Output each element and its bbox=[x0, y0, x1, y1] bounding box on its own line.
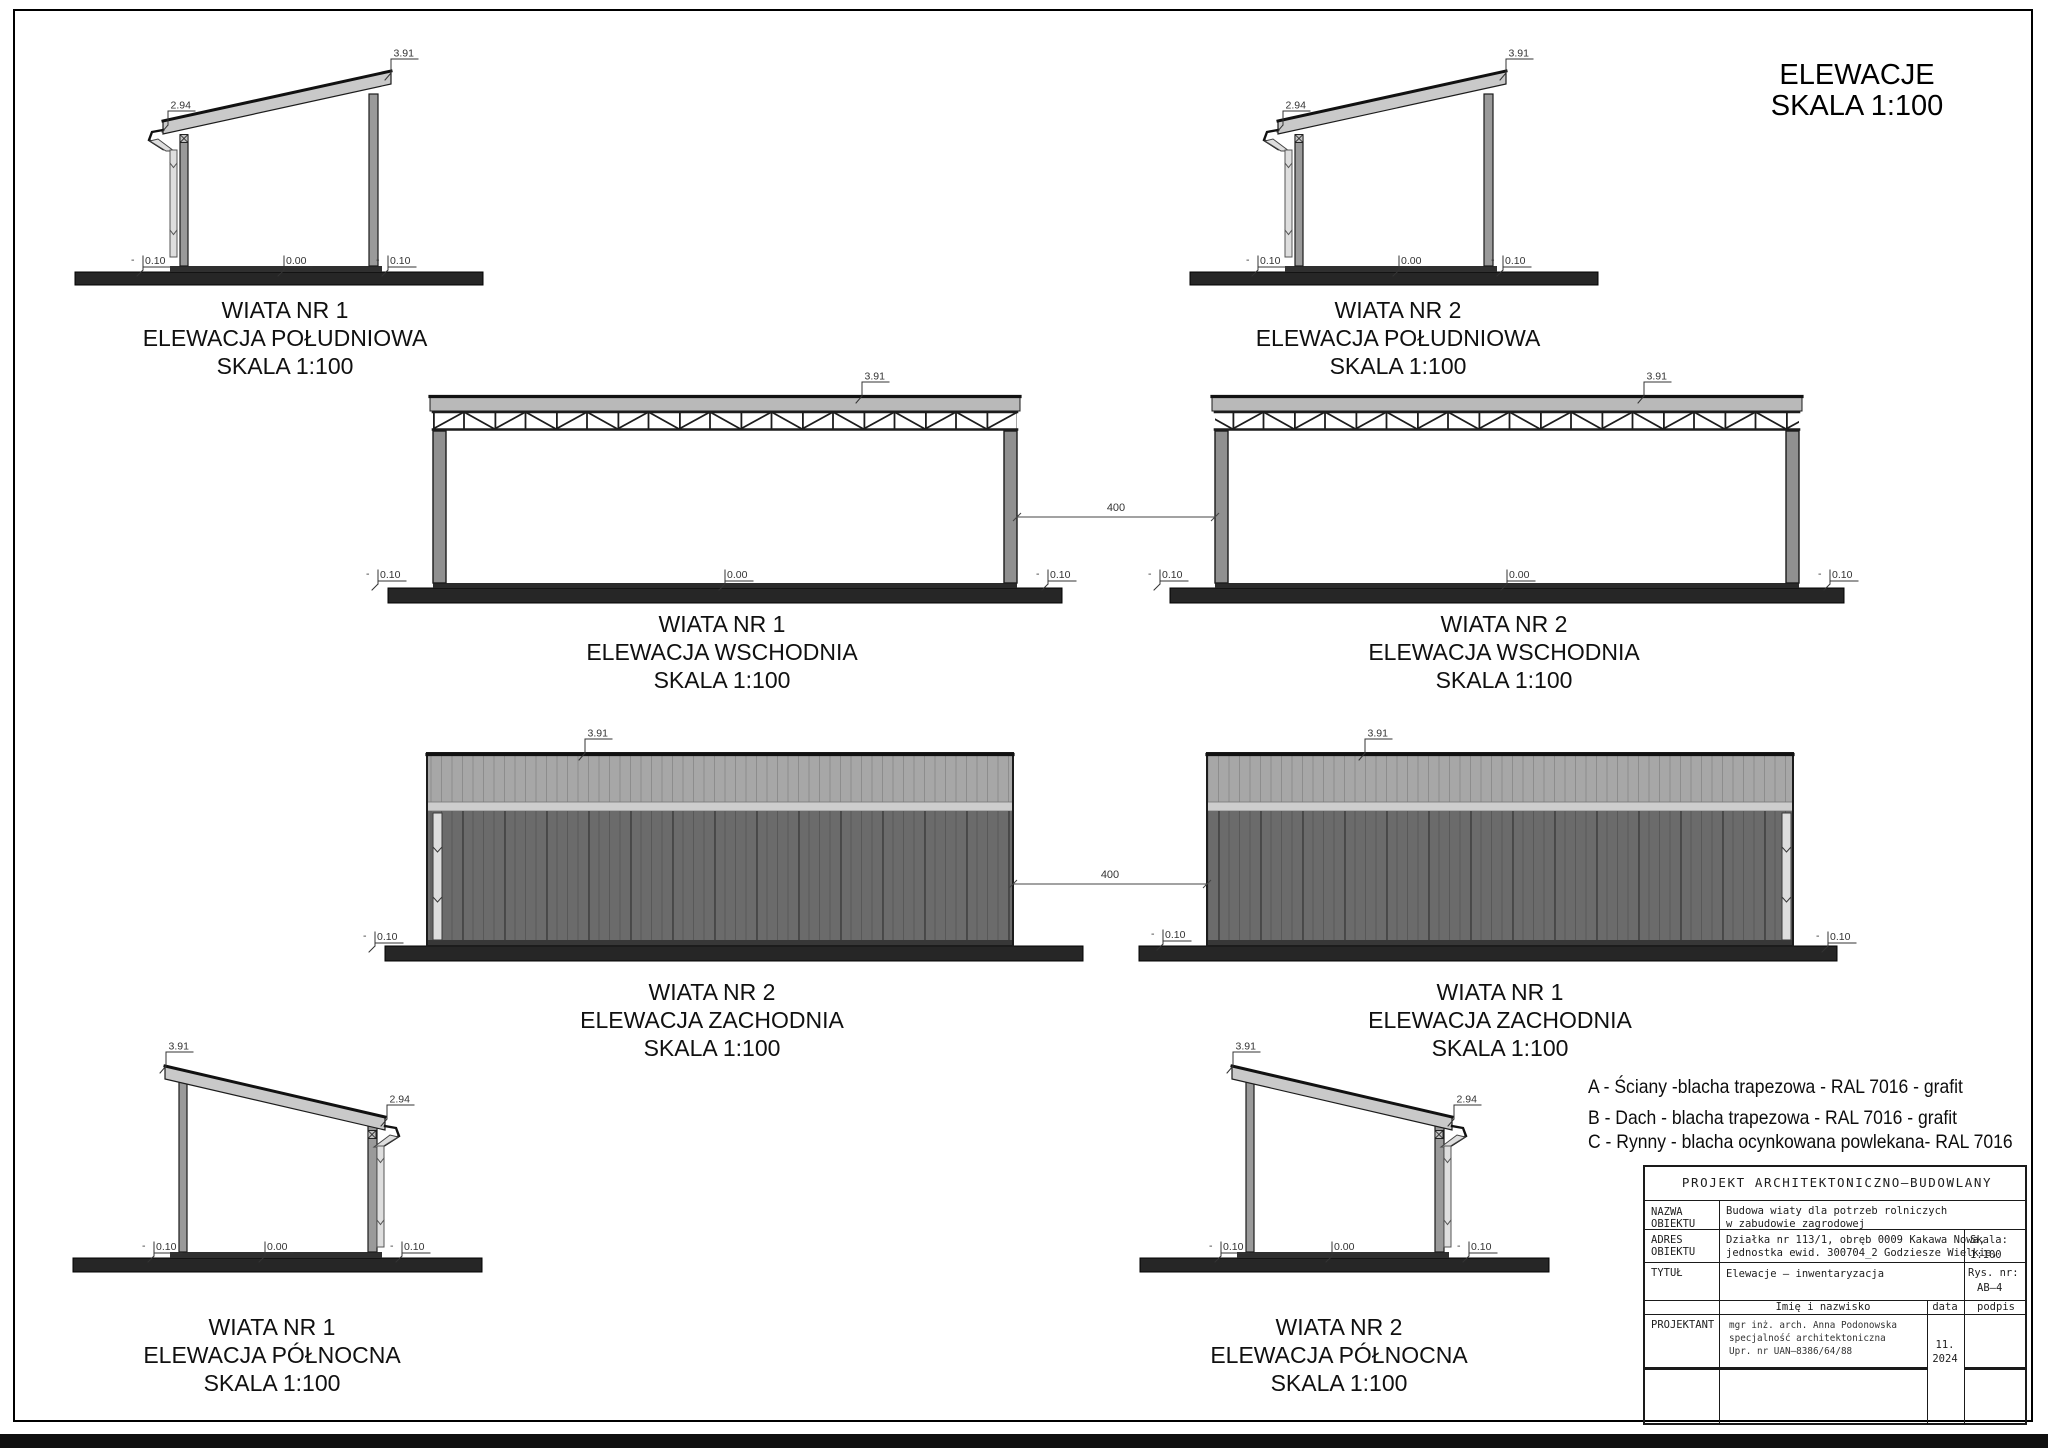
dim-level-top: 3.91 bbox=[865, 371, 886, 383]
titleblock-header: PROJEKT ARCHITEKTONICZNO–BUDOWLANY bbox=[1682, 1176, 1992, 1189]
roof-beam bbox=[163, 71, 391, 134]
dim-level-ground: 0.10 bbox=[1832, 569, 1853, 581]
legend-gutters: C - Rynny - blacha ocynkowana powlekana-… bbox=[1588, 1131, 2013, 1154]
projektant-license: Upr. nr UAN–8386/64/88 bbox=[1729, 1346, 1852, 1359]
dim-minus: - bbox=[131, 254, 135, 266]
dim-level-eave: 2.94 bbox=[171, 100, 192, 112]
sheet-title-line1: ELEWACJE bbox=[1771, 60, 1944, 91]
caption-line: WIATA NR 1 bbox=[1368, 978, 1632, 1006]
caption-line: ELEWACJA POŁUDNIOWA bbox=[1256, 324, 1541, 352]
elevation-s2-south-wiata2: 3.91 2.94 0.00 -0.10 -0.10 bbox=[1190, 48, 1598, 286]
grid-line bbox=[1645, 1262, 2025, 1263]
dim-level-top: 3.91 bbox=[169, 1041, 190, 1053]
roof-beam bbox=[1232, 1066, 1452, 1130]
dim-minus: - bbox=[1148, 568, 1152, 580]
dim-minus: - bbox=[142, 1240, 146, 1252]
dim-minus: - bbox=[366, 568, 370, 580]
projektant-name: mgr inż. arch. Anna Podonowska bbox=[1729, 1320, 1897, 1333]
downpipe bbox=[170, 150, 177, 257]
projektant-specialty: specjalność architektoniczna bbox=[1729, 1333, 1886, 1346]
dim-level-ground: 0.10 bbox=[1471, 1241, 1492, 1253]
caption-w1: WIATA NR 1 ELEWACJA ZACHODNIA SKALA 1:10… bbox=[1368, 978, 1632, 1062]
elevation-n2-north-wiata2: 3.91 2.94 0.00 -0.10 -0.10 bbox=[1140, 1041, 1549, 1273]
dim-minus: - bbox=[376, 254, 380, 266]
roof-top-edge bbox=[1278, 71, 1506, 121]
dim-level-top: 3.91 bbox=[394, 48, 415, 60]
column bbox=[1295, 136, 1303, 266]
roof-band bbox=[430, 396, 1020, 411]
dim-level-zero: 0.00 bbox=[286, 255, 307, 267]
adres-value-1: Działka nr 113/1, obręb 0009 Kakawa Nowa… bbox=[1726, 1234, 1985, 1247]
fascia-ribs bbox=[427, 756, 1013, 802]
dim-level-top: 3.91 bbox=[1368, 728, 1389, 740]
ground-bar bbox=[1190, 272, 1598, 285]
downpipe bbox=[377, 1146, 384, 1247]
dim-level-eave: 2.94 bbox=[1457, 1094, 1478, 1106]
title-block: PROJEKT ARCHITEKTONICZNO–BUDOWLANY NAZWA… bbox=[1643, 1165, 2027, 1425]
caption-line: SKALA 1:100 bbox=[1210, 1369, 1467, 1397]
sheet-bottom-edge bbox=[0, 1434, 2048, 1448]
tytul-value: Elewacje – inwentaryzacja bbox=[1726, 1268, 1884, 1281]
downpipe bbox=[1782, 813, 1791, 940]
ground-bar bbox=[388, 588, 1062, 603]
column bbox=[1246, 1082, 1254, 1252]
base-sill bbox=[1285, 266, 1497, 272]
dim-level-ground: 0.10 bbox=[145, 255, 166, 267]
column bbox=[1484, 94, 1493, 266]
sheet-title: ELEWACJE SKALA 1:100 bbox=[1771, 60, 1944, 122]
downpipe bbox=[1285, 150, 1292, 257]
caption-n1: WIATA NR 1 ELEWACJA PÓŁNOCNA SKALA 1:100 bbox=[143, 1313, 400, 1397]
ground-bar bbox=[385, 946, 1083, 961]
caption-w2: WIATA NR 2 ELEWACJA ZACHODNIA SKALA 1:10… bbox=[580, 978, 844, 1062]
dim-level-ground: 0.10 bbox=[404, 1241, 425, 1253]
roof-top-edge bbox=[165, 1066, 385, 1117]
wall-seams bbox=[1207, 811, 1793, 940]
elevation-e2-east-wiata2: 3.91 0.00 -0.10 -0.10 bbox=[1148, 371, 1858, 604]
caption-line: ELEWACJA PÓŁNOCNA bbox=[143, 1341, 400, 1369]
imie-header: Imię i nazwisko bbox=[1776, 1301, 1871, 1314]
caption-e2: WIATA NR 2 ELEWACJA WSCHODNIA SKALA 1:10… bbox=[1368, 610, 1639, 694]
dim-minus: - bbox=[1036, 568, 1040, 580]
ground-bar bbox=[73, 1258, 482, 1272]
caption-line: ELEWACJA PÓŁNOCNA bbox=[1210, 1341, 1467, 1369]
caption-line: ELEWACJA ZACHODNIA bbox=[1368, 1006, 1632, 1034]
elevation-s1-south-wiata1: 3.91 2.94 0.00 -0.10 -0.10 bbox=[75, 48, 483, 286]
dim-minus: - bbox=[1209, 1240, 1213, 1252]
base-sill bbox=[170, 266, 382, 272]
grid-line bbox=[1645, 1200, 2025, 1201]
caption-line: SKALA 1:100 bbox=[1256, 352, 1541, 380]
nazwa-value-2: w zabudowie zagrodowej bbox=[1726, 1218, 1865, 1231]
column bbox=[369, 94, 378, 266]
caption-e1: WIATA NR 1 ELEWACJA WSCHODNIA SKALA 1:10… bbox=[586, 610, 857, 694]
caption-line: WIATA NR 2 bbox=[1256, 296, 1541, 324]
rys-nr-label: Rys. nr: bbox=[1968, 1267, 2019, 1280]
rys-nr-value: AB–4 bbox=[1977, 1282, 2002, 1295]
roof-beam bbox=[165, 1066, 385, 1130]
data-header: data bbox=[1932, 1301, 1957, 1314]
grid-line bbox=[1645, 1367, 1927, 1370]
dim-level-ground: 0.10 bbox=[1505, 255, 1526, 267]
caption-line: ELEWACJA WSCHODNIA bbox=[1368, 638, 1639, 666]
roof-beam bbox=[1278, 71, 1506, 134]
gutter-strip bbox=[1207, 802, 1793, 811]
tytul-label: TYTUŁ bbox=[1651, 1267, 1683, 1280]
dim-minus: - bbox=[1816, 930, 1820, 942]
column bbox=[1215, 431, 1228, 583]
dim-level-eave: 2.94 bbox=[1286, 100, 1307, 112]
podpis-header: podpis bbox=[1977, 1301, 2015, 1314]
ground-bar bbox=[1170, 588, 1844, 603]
dim-level-ground: 0.10 bbox=[1830, 931, 1851, 943]
gutter-strip bbox=[427, 802, 1013, 811]
dim-level-top: 3.91 bbox=[1236, 1041, 1257, 1053]
caption-line: SKALA 1:100 bbox=[1368, 1034, 1632, 1062]
grid-line bbox=[1927, 1300, 1928, 1423]
caption-n2: WIATA NR 2 ELEWACJA PÓŁNOCNA SKALA 1:100 bbox=[1210, 1313, 1467, 1397]
column bbox=[179, 1082, 187, 1252]
column bbox=[180, 136, 188, 266]
skala-label: Skala: bbox=[1970, 1234, 2008, 1247]
ground-bar bbox=[1139, 946, 1837, 961]
dimension-gap-east: 400 bbox=[1013, 502, 1219, 521]
roof-top-edge bbox=[163, 71, 391, 121]
truss-web bbox=[433, 411, 1017, 430]
dim-level-ground: 0.10 bbox=[390, 255, 411, 267]
caption-line: SKALA 1:100 bbox=[143, 1369, 400, 1397]
dim-gap-value: 400 bbox=[1101, 869, 1119, 881]
dim-level-zero: 0.00 bbox=[1334, 1241, 1355, 1253]
caption-line: SKALA 1:100 bbox=[1368, 666, 1639, 694]
dimension-gap-west: 400 bbox=[1009, 869, 1211, 888]
ground-bar bbox=[75, 272, 483, 285]
wall-seams bbox=[427, 811, 1013, 940]
dim-minus: - bbox=[1491, 254, 1495, 266]
dim-level-ground: 0.10 bbox=[1260, 255, 1281, 267]
dim-level-zero: 0.00 bbox=[727, 569, 748, 581]
drawing-sheet: 3.91 2.94 0.00 -0.10 -0.10 3.91 2.94 0.0… bbox=[0, 0, 2048, 1448]
dim-level-eave: 2.94 bbox=[390, 1094, 411, 1106]
elevation-e1-east-wiata1: 3.91 0.00 -0.10 -0.10 bbox=[366, 371, 1076, 604]
elevation-w1-west-wiata1: 3.91 -0.10 -0.10 bbox=[1139, 728, 1856, 962]
dim-level-ground: 0.10 bbox=[1050, 569, 1071, 581]
dim-level-zero: 0.00 bbox=[1401, 255, 1422, 267]
caption-line: WIATA NR 2 bbox=[580, 978, 844, 1006]
dim-gap-value: 400 bbox=[1107, 502, 1125, 514]
caption-line: SKALA 1:100 bbox=[580, 1034, 844, 1062]
column bbox=[1004, 431, 1017, 583]
dim-level-ground: 0.10 bbox=[1165, 929, 1186, 941]
date-value-1: 11. bbox=[1936, 1339, 1955, 1352]
grid-line bbox=[1964, 1367, 2025, 1370]
dim-minus: - bbox=[1818, 568, 1822, 580]
dim-minus: - bbox=[363, 930, 367, 942]
downpipe bbox=[1444, 1146, 1451, 1247]
projektant-label: PROJEKTANT bbox=[1651, 1319, 1714, 1332]
dim-minus: - bbox=[1151, 928, 1155, 940]
date-value-2: 2024 bbox=[1932, 1353, 1957, 1366]
elevation-n1-north-wiata1: 3.91 2.94 0.00 -0.10 -0.10 bbox=[73, 1041, 482, 1273]
caption-line: ELEWACJA ZACHODNIA bbox=[580, 1006, 844, 1034]
dim-level-zero: 0.00 bbox=[1509, 569, 1530, 581]
skala-value: 1:100 bbox=[1970, 1249, 2002, 1262]
adres-label-2: OBIEKTU bbox=[1651, 1246, 1695, 1259]
downpipe bbox=[433, 813, 442, 940]
column bbox=[433, 431, 446, 583]
dim-level-ground: 0.10 bbox=[380, 569, 401, 581]
dim-minus: - bbox=[1457, 1240, 1461, 1252]
caption-line: SKALA 1:100 bbox=[143, 352, 428, 380]
dim-level-zero: 0.00 bbox=[267, 1241, 288, 1253]
legend-walls: A - Ściany -blacha trapezowa - RAL 7016 … bbox=[1588, 1076, 1963, 1099]
column bbox=[1786, 431, 1799, 583]
nazwa-label-2: OBIEKTU bbox=[1651, 1218, 1695, 1231]
dim-minus: - bbox=[1246, 254, 1250, 266]
legend-roof: B - Dach - blacha trapezowa - RAL 7016 -… bbox=[1588, 1107, 1957, 1130]
caption-line: WIATA NR 2 bbox=[1368, 610, 1639, 638]
dim-level-top: 3.91 bbox=[588, 728, 609, 740]
grid-line bbox=[1645, 1314, 2025, 1315]
caption-line: ELEWACJA WSCHODNIA bbox=[586, 638, 857, 666]
caption-line: WIATA NR 1 bbox=[586, 610, 857, 638]
caption-line: WIATA NR 2 bbox=[1210, 1313, 1467, 1341]
roof-top-edge bbox=[1232, 1066, 1452, 1117]
column bbox=[1435, 1122, 1444, 1252]
nazwa-value-1: Budowa wiaty dla potrzeb rolniczych bbox=[1726, 1205, 1947, 1218]
caption-line: WIATA NR 1 bbox=[143, 296, 428, 324]
grid-line bbox=[1719, 1200, 1720, 1423]
caption-s1: WIATA NR 1 ELEWACJA POŁUDNIOWA SKALA 1:1… bbox=[143, 296, 428, 380]
fascia-ribs bbox=[1207, 756, 1793, 802]
roof-band bbox=[1212, 396, 1802, 411]
dim-minus: - bbox=[390, 1240, 394, 1252]
elevation-w2-west-wiata2: 3.91 -0.10 bbox=[363, 728, 1083, 962]
truss-web bbox=[1215, 411, 1799, 430]
sheet-title-line2: SKALA 1:100 bbox=[1771, 91, 1944, 122]
caption-line: SKALA 1:100 bbox=[586, 666, 857, 694]
dim-level-ground: 0.10 bbox=[156, 1241, 177, 1253]
dim-level-top: 3.91 bbox=[1647, 371, 1668, 383]
ground-bar bbox=[1140, 1258, 1549, 1272]
dim-level-ground: 0.10 bbox=[377, 931, 398, 943]
adres-value-2: jednostka ewid. 300704_2 Godziesze Wielk… bbox=[1726, 1247, 1998, 1260]
dim-level-ground: 0.10 bbox=[1223, 1241, 1244, 1253]
caption-line: WIATA NR 1 bbox=[143, 1313, 400, 1341]
column bbox=[368, 1122, 377, 1252]
dim-level-top: 3.91 bbox=[1509, 48, 1530, 60]
dim-level-ground: 0.10 bbox=[1162, 569, 1183, 581]
caption-s2: WIATA NR 2 ELEWACJA POŁUDNIOWA SKALA 1:1… bbox=[1256, 296, 1541, 380]
caption-line: ELEWACJA POŁUDNIOWA bbox=[143, 324, 428, 352]
